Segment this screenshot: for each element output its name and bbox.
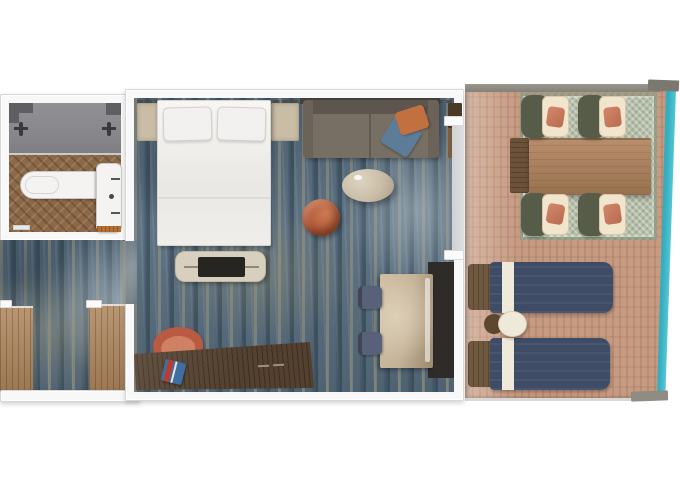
toilet bbox=[20, 171, 100, 199]
sofa-seat-split bbox=[369, 114, 371, 158]
toilet-seat bbox=[25, 176, 59, 194]
chair-pillow bbox=[603, 203, 623, 225]
double-bed bbox=[157, 100, 271, 246]
sofa-arm-right bbox=[428, 100, 439, 158]
nightstand-left bbox=[137, 103, 158, 141]
bathroom-shower-area bbox=[9, 103, 121, 155]
nightstand-right bbox=[271, 103, 299, 141]
bedroom-door-opening bbox=[123, 241, 137, 304]
vanity-handle-icon bbox=[111, 212, 120, 214]
outdoor-bench bbox=[510, 138, 529, 193]
wardrobe-right bbox=[89, 304, 130, 391]
railing-cap-bottom bbox=[631, 390, 668, 401]
sun-lounger-top bbox=[466, 260, 616, 316]
balcony-bottom-shadow bbox=[465, 398, 637, 401]
table-reflection bbox=[425, 278, 430, 362]
wall-jamb bbox=[0, 300, 12, 308]
entry-bottom-wall bbox=[0, 390, 140, 402]
vanity-handle-icon bbox=[111, 178, 120, 180]
faucet-icon bbox=[109, 194, 114, 199]
chair-pillow bbox=[603, 106, 622, 128]
outdoor-dining-table bbox=[529, 138, 651, 195]
chair-pillow bbox=[545, 203, 565, 226]
door-jamb-top bbox=[444, 116, 464, 126]
side-chair-upper bbox=[358, 286, 382, 309]
wardrobe-left bbox=[0, 306, 33, 392]
pillow-left bbox=[163, 106, 213, 141]
drawer-handle-icon bbox=[273, 364, 284, 367]
sofa-arm-left bbox=[303, 100, 313, 158]
outdoor-chair-top-left bbox=[521, 95, 570, 138]
oval-coffee-table bbox=[342, 169, 394, 202]
lounger-stripe bbox=[502, 338, 514, 390]
tv bbox=[198, 257, 245, 277]
bath-mat bbox=[13, 225, 30, 230]
round-accent-chair bbox=[302, 199, 340, 236]
floorplan-canvas bbox=[0, 0, 680, 486]
outdoor-chair-bottom-right bbox=[578, 193, 627, 236]
side-chair-lower bbox=[358, 332, 382, 355]
side-dining-table bbox=[380, 274, 433, 368]
balcony-sliding-door bbox=[452, 124, 464, 252]
sun-lounger-bottom bbox=[466, 336, 614, 393]
outdoor-chair-top-right bbox=[578, 95, 627, 138]
lounger-stripe bbox=[502, 262, 514, 313]
wall-jamb bbox=[86, 300, 102, 308]
door-threshold bbox=[97, 226, 121, 232]
shower-head-right-icon bbox=[107, 122, 111, 136]
chair-pillow bbox=[546, 106, 566, 128]
shower-corner-box bbox=[9, 103, 19, 123]
tv-console bbox=[175, 251, 266, 282]
drawer-handle-icon bbox=[258, 365, 269, 368]
round-side-table bbox=[498, 311, 527, 337]
vanity-sink bbox=[96, 163, 122, 232]
table-highlight bbox=[354, 175, 362, 180]
pillow-right bbox=[217, 106, 267, 141]
outdoor-chair-bottom-left bbox=[521, 193, 570, 236]
shower-corner-box bbox=[106, 103, 121, 115]
balcony-top-rail bbox=[465, 84, 661, 92]
door-jamb-bottom bbox=[444, 250, 464, 260]
sofa bbox=[303, 100, 439, 158]
shower-head-left-icon bbox=[19, 122, 23, 136]
railing-cap-top bbox=[648, 79, 679, 91]
bed-fold-line bbox=[158, 197, 270, 199]
bathroom-wood-floor bbox=[9, 155, 121, 232]
